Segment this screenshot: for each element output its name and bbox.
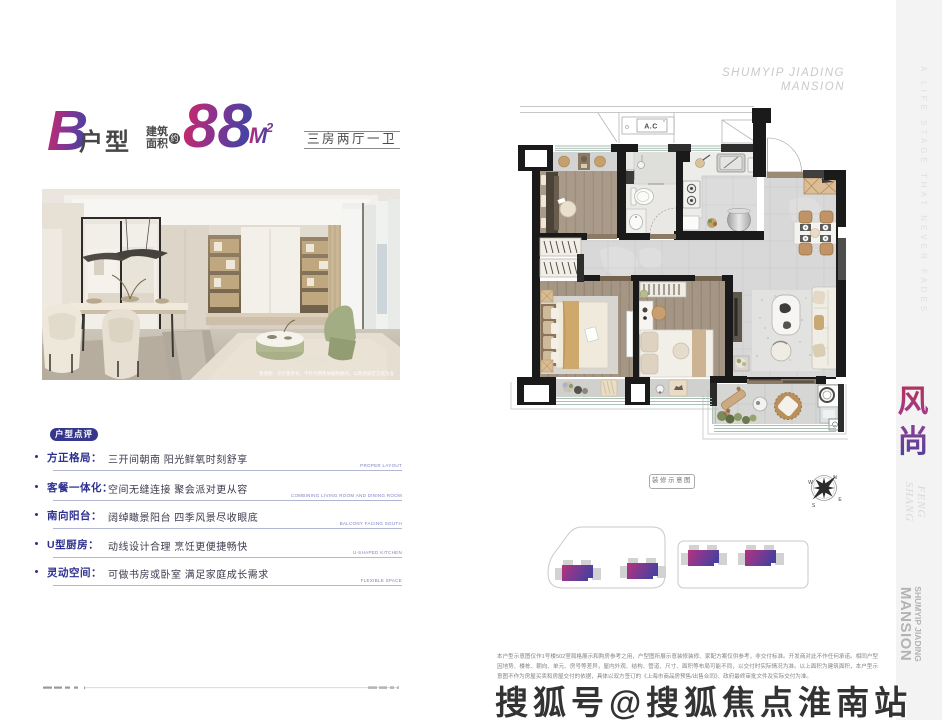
svg-text:W: W <box>808 480 813 486</box>
svg-text:E: E <box>838 497 842 503</box>
svg-text:N: N <box>833 475 837 481</box>
svg-text:意境图：仅示意参考，不作为销售依据和要约，以政府核定方案为准: 意境图：仅示意参考，不作为销售依据和要约，以政府核定方案为准 <box>259 370 394 377</box>
svg-text:*: * <box>663 120 665 126</box>
svg-text:A.C: A.C <box>644 124 658 131</box>
svg-text:S: S <box>812 503 816 509</box>
